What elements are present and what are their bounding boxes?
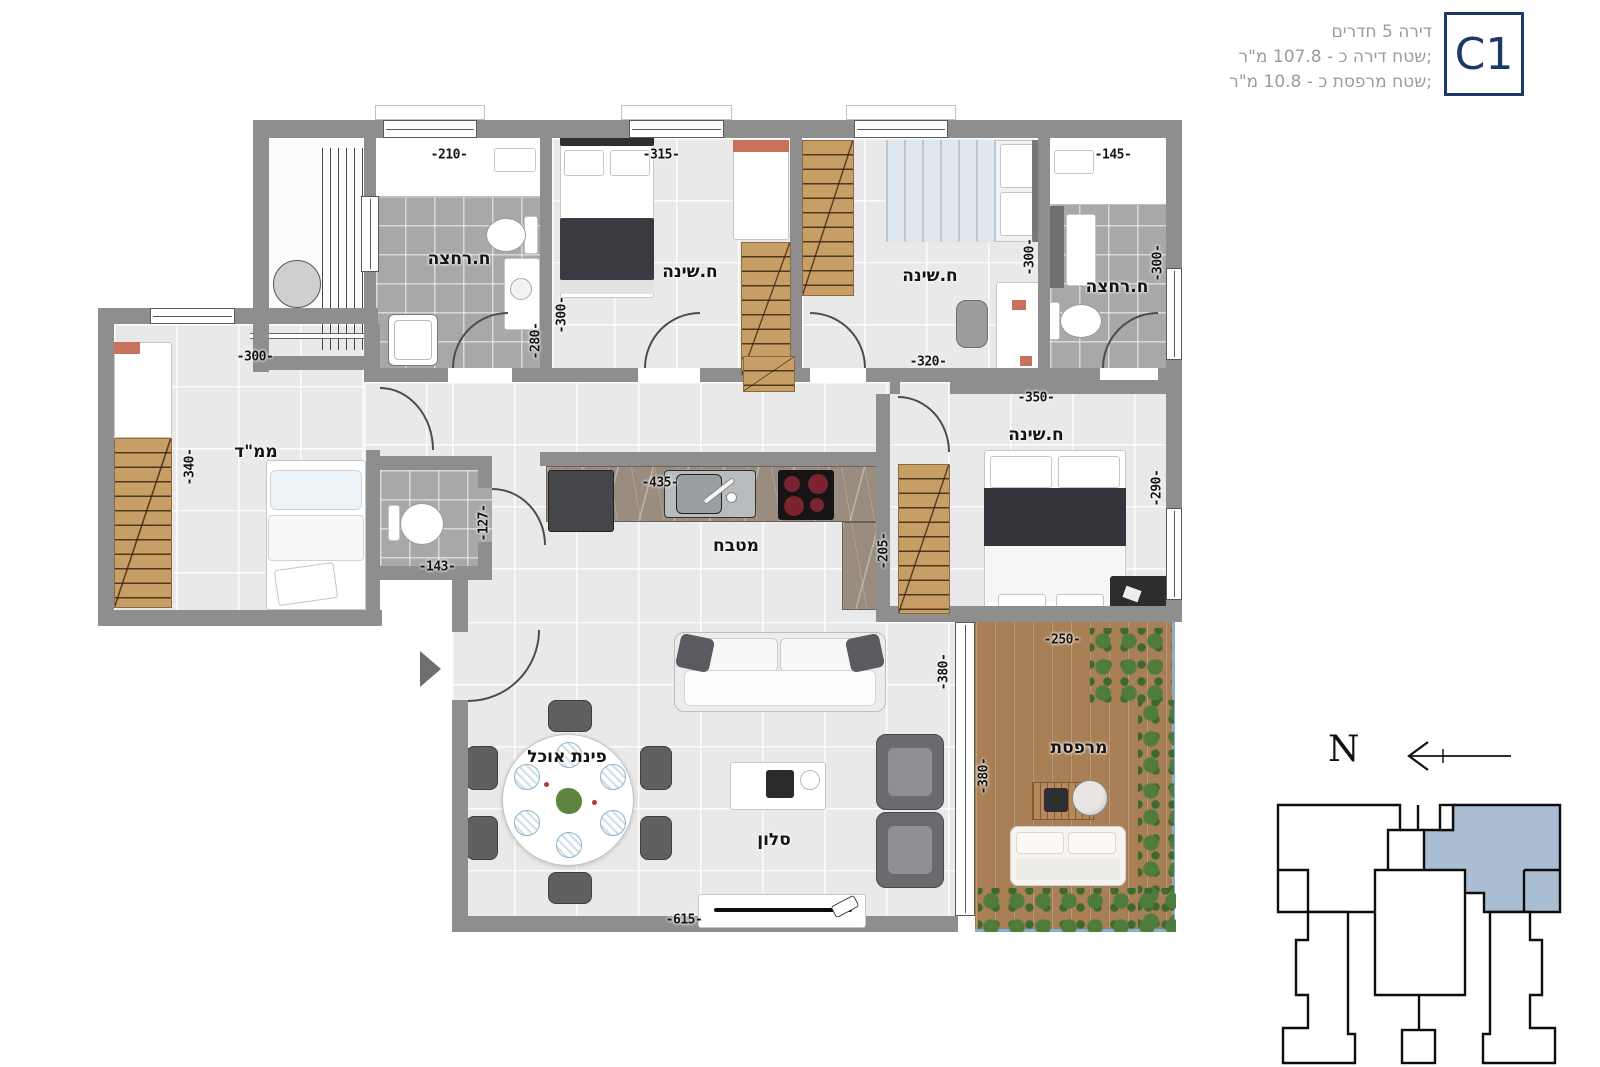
dining-chair-icon — [466, 746, 498, 790]
bed3-pillow-icon — [990, 456, 1052, 488]
outdoor-tray-icon — [1044, 788, 1068, 812]
bed2-wardrobe-icon — [802, 140, 854, 296]
mamad-linens-icon — [268, 515, 364, 561]
dim-label: -300- — [237, 350, 274, 365]
dim-label: -143- — [419, 560, 456, 575]
balcony-plants — [978, 888, 1176, 932]
bath1-sink-icon — [494, 148, 536, 172]
sofa-seat-icon — [684, 670, 876, 706]
bath1-toilet-bowl-icon — [486, 218, 526, 252]
room-label-bedroom2: ח.שינה — [902, 266, 957, 286]
bed3-pillow-icon — [1058, 456, 1120, 488]
wall-bed3-top-1 — [890, 380, 900, 394]
wall-bed1-bed2 — [790, 120, 802, 370]
bed2-desk-item — [1012, 300, 1026, 310]
bed1-blanket-icon — [560, 218, 654, 280]
window-right-1 — [1166, 268, 1182, 360]
wc-toilet-tank-icon — [388, 505, 400, 541]
dim-label: -250- — [1044, 633, 1081, 648]
dim-label: -280- — [529, 323, 544, 360]
wall-bed2-bath2 — [1038, 120, 1050, 370]
centerpiece-icon — [556, 788, 582, 814]
faucet-knob-icon — [726, 492, 737, 503]
wall-mamad-left — [98, 308, 114, 626]
dim-label: -435- — [642, 476, 679, 491]
bath1-basin-icon — [510, 278, 532, 300]
wall-wc-right-2 — [478, 542, 492, 568]
apartment-type-label: דירה 5 חדרים — [1150, 20, 1432, 45]
balcony-area-label: שטח מרפסת כ - 10.8 מ"ר; — [1150, 70, 1432, 95]
room-label-kitchen: מטבח — [713, 536, 759, 556]
wall-mamad-right-1 — [366, 324, 380, 382]
dining-chair-icon — [640, 746, 672, 790]
room-label-bathroom1: ח.רחצה — [428, 249, 491, 269]
dim-label: -315- — [643, 148, 680, 163]
bed1-fold-icon — [560, 280, 654, 294]
bed2-blanket-icon — [886, 140, 996, 242]
coffee-table-tray-icon — [766, 770, 794, 798]
unit-badge: C1 — [1444, 12, 1524, 96]
window-top-1 — [383, 120, 477, 138]
apartment-area-label: שטח דירה כ - 107.8 מ"ר; — [1150, 45, 1432, 70]
wall-right-2 — [1166, 360, 1182, 510]
dining-chair-icon — [548, 700, 592, 732]
wall-top-3 — [724, 120, 854, 138]
dining-chair-icon — [548, 872, 592, 904]
room-label-bedroom1: ח.שינה — [662, 262, 717, 282]
north-label: N — [1328, 729, 1360, 770]
bed3-wardrobe-icon — [898, 464, 950, 614]
mamad-wardrobe-icon — [114, 438, 172, 608]
window-right-2 — [1166, 508, 1182, 600]
dining-chair-icon — [466, 816, 498, 860]
dining-chair-icon — [640, 816, 672, 860]
dim-label: -380- — [977, 758, 992, 795]
dim-label: -300- — [1023, 239, 1038, 276]
north-arrow-icon — [1365, 733, 1515, 779]
burner-icon — [810, 498, 824, 512]
wall-wc-right-1 — [478, 470, 492, 488]
bed2-chair-icon — [956, 300, 988, 348]
fridge-icon — [548, 470, 614, 532]
burner-icon — [784, 496, 804, 516]
dim-label: -290- — [1150, 470, 1165, 507]
dim-label: -380- — [937, 654, 952, 691]
dim-label: -145- — [1095, 148, 1132, 163]
wall-top-2 — [477, 120, 629, 138]
room-label-balcony: מרפסת — [1051, 738, 1108, 758]
bed3-blanket-icon — [984, 488, 1126, 546]
wall-band-2 — [512, 368, 638, 382]
plate-icon — [600, 764, 626, 790]
header-text: דירה 5 חדרים שטח דירה כ - 107.8 מ"ר; שטח… — [1150, 20, 1432, 95]
coffee-table-decor-icon — [800, 770, 820, 790]
sofa-pillow-icon — [845, 633, 885, 673]
burner-icon — [808, 474, 828, 494]
armchair-cushion-icon — [888, 826, 932, 874]
dim-label: -320- — [910, 355, 947, 370]
window-top-3 — [854, 120, 948, 138]
room-label-bathroom2: ח.רחצה — [1086, 277, 1149, 297]
bath2-sink-icon — [1054, 150, 1094, 174]
bath2-toilet-bowl-icon — [1060, 304, 1102, 338]
wall-living-left-2 — [452, 700, 468, 932]
wall-living-left-1 — [452, 566, 468, 632]
outdoor-marble-table-icon — [1072, 780, 1108, 816]
room-label-mamad: ממ"ד — [234, 442, 277, 462]
dim-label: -205- — [877, 533, 892, 570]
mamad-cabinet-icon — [114, 342, 172, 438]
plate-icon — [600, 810, 626, 836]
wall-bed3-left — [876, 394, 890, 622]
wc-toilet-bowl-icon — [400, 503, 444, 545]
bed1-pillow-icon — [564, 150, 604, 176]
wall-wc-top — [380, 456, 492, 470]
bed2-desk-icon — [996, 282, 1040, 376]
outdoor-seat-icon — [1016, 858, 1120, 880]
window-mamad — [150, 308, 235, 324]
wall-right-1 — [1166, 120, 1182, 268]
window-sill-2 — [621, 105, 732, 120]
shower-inner-icon — [394, 320, 432, 360]
room-label-dining: פינת אוכל — [527, 747, 607, 767]
room-label-living: סלון — [757, 830, 791, 850]
bath1-toilet-tank-icon — [524, 216, 538, 254]
window-sill-3 — [846, 105, 956, 120]
boiler-icon — [273, 260, 321, 308]
building-key-plan — [1262, 790, 1562, 1067]
table-decor-dot — [544, 782, 549, 787]
bed2-desk-item — [1020, 356, 1032, 366]
window-sill-1 — [375, 105, 485, 120]
window-top-2 — [629, 120, 724, 138]
bed2-pillow-icon — [1000, 192, 1034, 236]
bath2-cabinet-icon — [1066, 214, 1096, 286]
bed1-cabinet-icon — [733, 140, 789, 240]
wall-top-1 — [253, 120, 383, 138]
wall-service-left — [253, 120, 269, 372]
wall-mamad-right-2 — [366, 450, 380, 610]
dim-label: -350- — [1018, 391, 1055, 406]
table-decor-dot — [592, 800, 597, 805]
dim-label: -340- — [183, 449, 198, 486]
bed2-pillow-icon — [1000, 144, 1034, 188]
wall-mamad-bottom — [98, 610, 382, 626]
plate-icon — [556, 832, 582, 858]
armchair-cushion-icon — [888, 748, 932, 796]
slider-service-bath1 — [361, 196, 379, 272]
dim-label: -210- — [431, 148, 468, 163]
unit-badge-label: C1 — [1455, 29, 1514, 80]
plate-icon — [514, 810, 540, 836]
wall-top-4 — [948, 120, 1182, 138]
glass-door-balcony — [955, 622, 975, 916]
balcony-plants — [1090, 628, 1172, 706]
plate-icon — [514, 764, 540, 790]
entrance-arrow-icon — [420, 651, 441, 687]
wall-kitchen-top — [540, 452, 890, 466]
dim-label: -300- — [1151, 245, 1166, 282]
wall-mamad-top-2 — [235, 308, 378, 324]
dim-label: -300- — [555, 297, 570, 334]
dim-label: -127- — [477, 505, 492, 542]
floorplan-page: { "header": { "line1": "דירה 5 חדרים", "… — [0, 0, 1600, 1067]
outdoor-cushion-icon — [1068, 832, 1116, 854]
room-label-bedroom3: ח.שינה — [1008, 425, 1063, 445]
sofa-pillow-icon — [675, 633, 715, 673]
mamad-cabinet-accent — [114, 342, 140, 354]
outdoor-cushion-icon — [1016, 832, 1064, 854]
dim-label: -615- — [666, 913, 703, 928]
mamad-linens-icon — [270, 470, 362, 510]
wall-bed3-top-2 — [950, 380, 1166, 394]
burner-icon — [784, 476, 800, 492]
bath2-column-icon — [1050, 206, 1064, 288]
bed1-cabinet-accent — [733, 140, 789, 152]
hall-closet-icon — [743, 356, 795, 392]
